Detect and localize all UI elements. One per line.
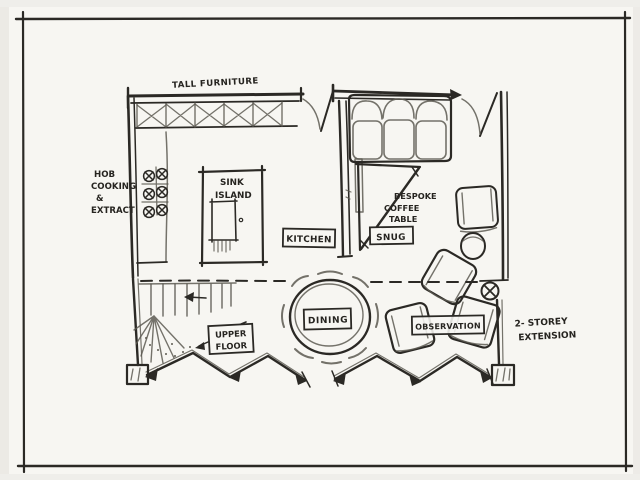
kitchen-label: KITCHEN bbox=[283, 229, 335, 248]
svg-text:COFFEE: COFFEE bbox=[384, 203, 419, 213]
svg-text:DINING: DINING bbox=[308, 315, 348, 326]
upper-floor-label: UPPER FLOOR bbox=[208, 324, 253, 354]
svg-text:&: & bbox=[96, 194, 104, 204]
svg-text:TABLE: TABLE bbox=[389, 214, 417, 224]
svg-text:SNUG: SNUG bbox=[376, 233, 406, 244]
svg-text:FLOOR: FLOOR bbox=[215, 340, 247, 352]
floor-plan-sketch: TALL FURNITURE HOB COOKING & EXTRACT bbox=[0, 0, 640, 480]
svg-text:ISLAND: ISLAND bbox=[215, 191, 252, 201]
svg-text:OBSERVATION: OBSERVATION bbox=[415, 321, 481, 331]
svg-text:SINK: SINK bbox=[220, 178, 245, 188]
paper-edge-top bbox=[0, 0, 640, 7]
svg-text:KITCHEN: KITCHEN bbox=[286, 235, 332, 246]
svg-text:UPPER: UPPER bbox=[215, 328, 247, 340]
snug-label: SNUG bbox=[370, 227, 413, 245]
svg-text:COOKING: COOKING bbox=[91, 182, 136, 192]
svg-text:HOB: HOB bbox=[94, 170, 115, 180]
sketch-page: TALL FURNITURE HOB COOKING & EXTRACT bbox=[0, 0, 640, 480]
paper-edge-left bbox=[0, 0, 9, 480]
paper-edge-bottom bbox=[0, 474, 640, 480]
dining-label: DINING bbox=[304, 308, 352, 329]
svg-text:EXTRACT: EXTRACT bbox=[91, 206, 135, 216]
observation-label: OBSERVATION bbox=[412, 315, 484, 334]
paper-edge-right bbox=[633, 0, 640, 480]
svg-text:BESPOKE: BESPOKE bbox=[394, 191, 437, 201]
